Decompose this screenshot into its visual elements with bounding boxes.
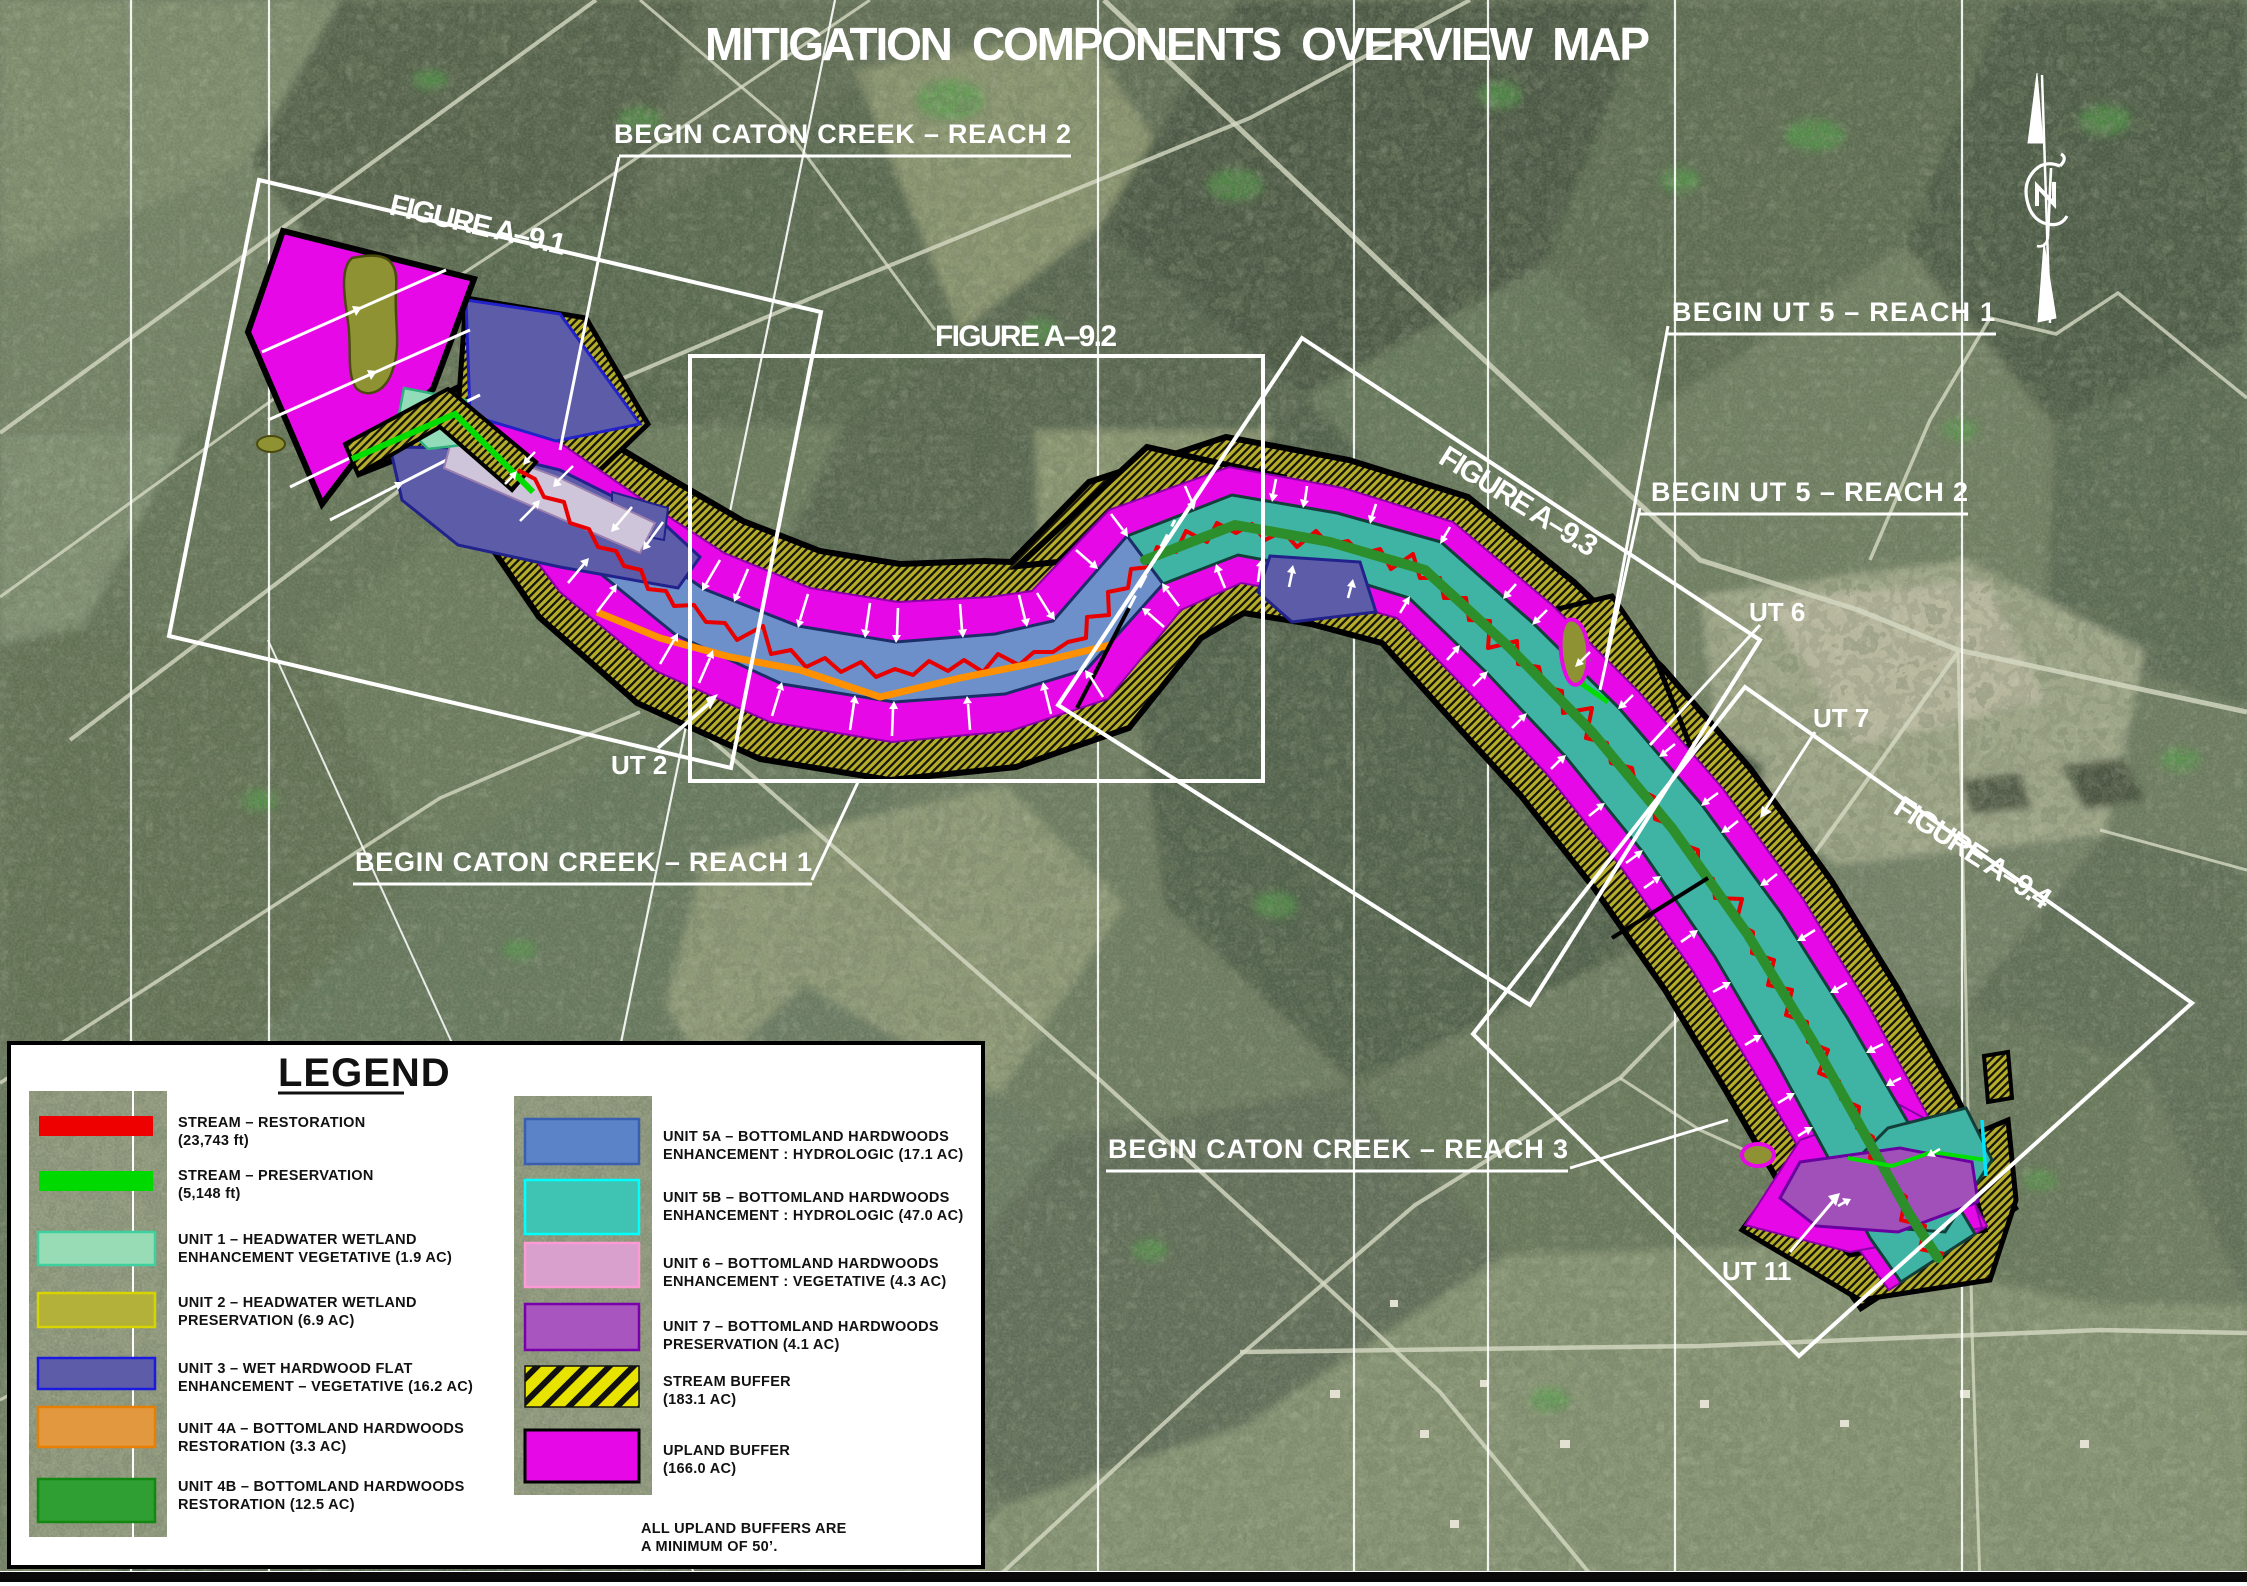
svg-text:PRESERVATION (4.1 AC): PRESERVATION (4.1 AC) (663, 1337, 840, 1353)
svg-text:(183.1 AC): (183.1 AC) (663, 1392, 736, 1408)
svg-text:PRESERVATION (6.9 AC): PRESERVATION (6.9 AC) (178, 1313, 355, 1329)
svg-text:UNIT 5A – BOTTOMLAND HARDW: UNIT 5A – BOTTOMLAND HARDWOODS (663, 1129, 949, 1145)
svg-text:STREAM BUFFER: STREAM BUFFER (663, 1374, 791, 1390)
svg-text:UNIT 1 – HEADWATER WETLAND: UNIT 1 – HEADWATER WETLAND (178, 1232, 417, 1248)
svg-text:RESTORATION (3.3 AC): RESTORATION (3.3 AC) (178, 1439, 346, 1455)
svg-text:BEGIN UT 5 – REACH 2: BEGIN UT 5 – REACH 2 (1651, 477, 1968, 507)
svg-text:ENHANCEMENT : HYDROLOGIC (47.: ENHANCEMENT : HYDROLOGIC (47.0 AC) (663, 1208, 963, 1224)
svg-text:UNIT 6 – BOTTOMLAND HARDWO: UNIT 6 – BOTTOMLAND HARDWOODS (663, 1256, 939, 1272)
svg-text:RESTORATION (12.5 AC): RESTORATION (12.5 AC) (178, 1497, 355, 1513)
svg-text:ENHANCEMENT : VEGETATIVE (4.3: ENHANCEMENT : VEGETATIVE (4.3 AC) (663, 1274, 947, 1290)
svg-text:A MINIMUM OF 50’.: A MINIMUM OF 50’. (641, 1539, 778, 1555)
svg-text:STREAM – RESTORATION: STREAM – RESTORATION (178, 1115, 366, 1131)
svg-text:UT 6: UT 6 (1749, 597, 1805, 627)
svg-text:UNIT 7 – BOTTOMLAND HARDWO: UNIT 7 – BOTTOMLAND HARDWOODS (663, 1319, 939, 1335)
svg-text:ENHANCEMENT VEGETATIVE (1.9: ENHANCEMENT VEGETATIVE (1.9 AC) (178, 1250, 452, 1266)
svg-text:FIGURE A–9.2: FIGURE A–9.2 (935, 320, 1117, 353)
svg-text:STREAM – PRESERVATION: STREAM – PRESERVATION (178, 1168, 374, 1184)
svg-text:BEGIN CATON CREEK – REACH: BEGIN CATON CREEK – REACH 1 (355, 847, 812, 877)
svg-text:MITIGATION COMPONENTS OVERVI: MITIGATION COMPONENTS OVERVIEW MAP (705, 18, 1653, 70)
svg-text:LEGEND: LEGEND (278, 1051, 451, 1095)
svg-text:ENHANCEMENT : HYDROLOGIC (17.: ENHANCEMENT : HYDROLOGIC (17.1 AC) (663, 1147, 963, 1163)
svg-text:BEGIN CATON CREEK – REACH: BEGIN CATON CREEK – REACH 3 (1108, 1134, 1568, 1164)
svg-text:UNIT 3 – WET HARDWOOD FLA: UNIT 3 – WET HARDWOOD FLAT (178, 1361, 413, 1377)
svg-text:UNIT 2 – HEADWATER WETLAND: UNIT 2 – HEADWATER WETLAND (178, 1295, 417, 1311)
svg-text:ENHANCEMENT – VEGETATIVE (16.: ENHANCEMENT – VEGETATIVE (16.2 AC) (178, 1379, 473, 1395)
svg-text:BEGIN CATON CREEK – REACH: BEGIN CATON CREEK – REACH 2 (614, 119, 1071, 149)
svg-text:(166.0 AC): (166.0 AC) (663, 1461, 736, 1477)
svg-text:UT 2: UT 2 (611, 750, 667, 780)
svg-text:BEGIN UT 5 – REACH 1: BEGIN UT 5 – REACH 1 (1672, 297, 1995, 327)
svg-text:UT 11: UT 11 (1722, 1256, 1791, 1286)
svg-text:UNIT 4B – BOTTOMLAND HARDW: UNIT 4B – BOTTOMLAND HARDWOODS (178, 1479, 465, 1495)
svg-text:UNIT 5B – BOTTOMLAND HARDW: UNIT 5B – BOTTOMLAND HARDWOODS (663, 1190, 950, 1206)
svg-text:(23,743 ft): (23,743 ft) (178, 1133, 249, 1149)
svg-text:UNIT 4A – BOTTOMLAND HARDW: UNIT 4A – BOTTOMLAND HARDWOODS (178, 1421, 464, 1437)
svg-text:UPLAND BUFFER: UPLAND BUFFER (663, 1443, 790, 1459)
svg-text:UT 7: UT 7 (1813, 703, 1869, 733)
svg-text:ALL UPLAND BUFFERS ARE: ALL UPLAND BUFFERS ARE (641, 1521, 847, 1537)
svg-text:(5,148 ft): (5,148 ft) (178, 1186, 241, 1202)
